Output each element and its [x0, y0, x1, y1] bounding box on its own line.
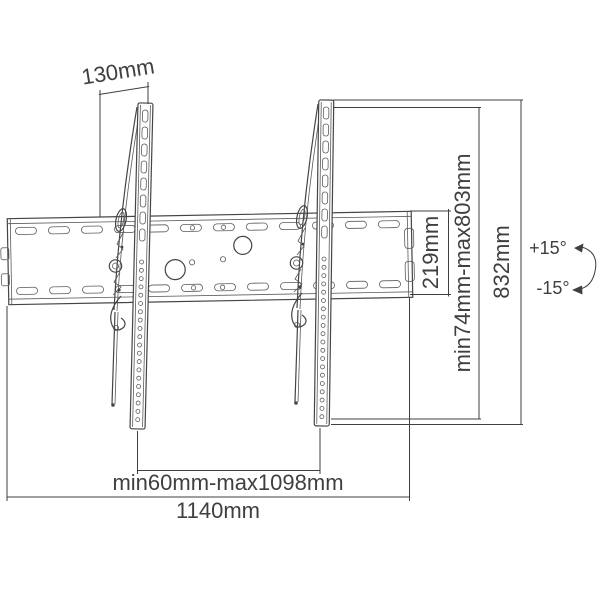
tilt-arrow-arc	[578, 247, 596, 290]
dim-130mm-label: 130mm	[80, 53, 156, 89]
tilt-arrow-head-bottom	[572, 286, 583, 295]
right-rod-foot	[294, 401, 298, 405]
wall-plate-body	[7, 211, 413, 304]
dim-832mm-label: 832mm	[489, 225, 514, 298]
wall-plate	[0, 211, 415, 305]
tilt-up-label: +15°	[529, 238, 567, 258]
right-rail	[314, 100, 334, 426]
dim-219mm-label: 219mm	[418, 216, 443, 289]
tilt-arrow-head-top	[574, 244, 584, 253]
technical-drawing-canvas: 130mm 219mm min74mm-max803mm 832mm +15° …	[0, 0, 600, 600]
left-rod-foot	[111, 403, 115, 407]
dim-1140mm-label: 1140mm	[176, 498, 260, 523]
tilt-indicator: +15° -15°	[529, 238, 596, 298]
dim-min60-max1098: min60mm-max1098mm	[112, 428, 343, 495]
dim-min74-max803-label: min74mm-max803mm	[450, 154, 475, 373]
dim-219mm: 219mm	[410, 209, 451, 297]
tilt-down-label: -15°	[536, 278, 569, 298]
dim-min60-max1098-label: min60mm-max1098mm	[112, 470, 343, 495]
right-tilt-rod	[295, 310, 298, 402]
mount-diagram: 130mm 219mm min74mm-max803mm 832mm +15° …	[0, 0, 600, 600]
